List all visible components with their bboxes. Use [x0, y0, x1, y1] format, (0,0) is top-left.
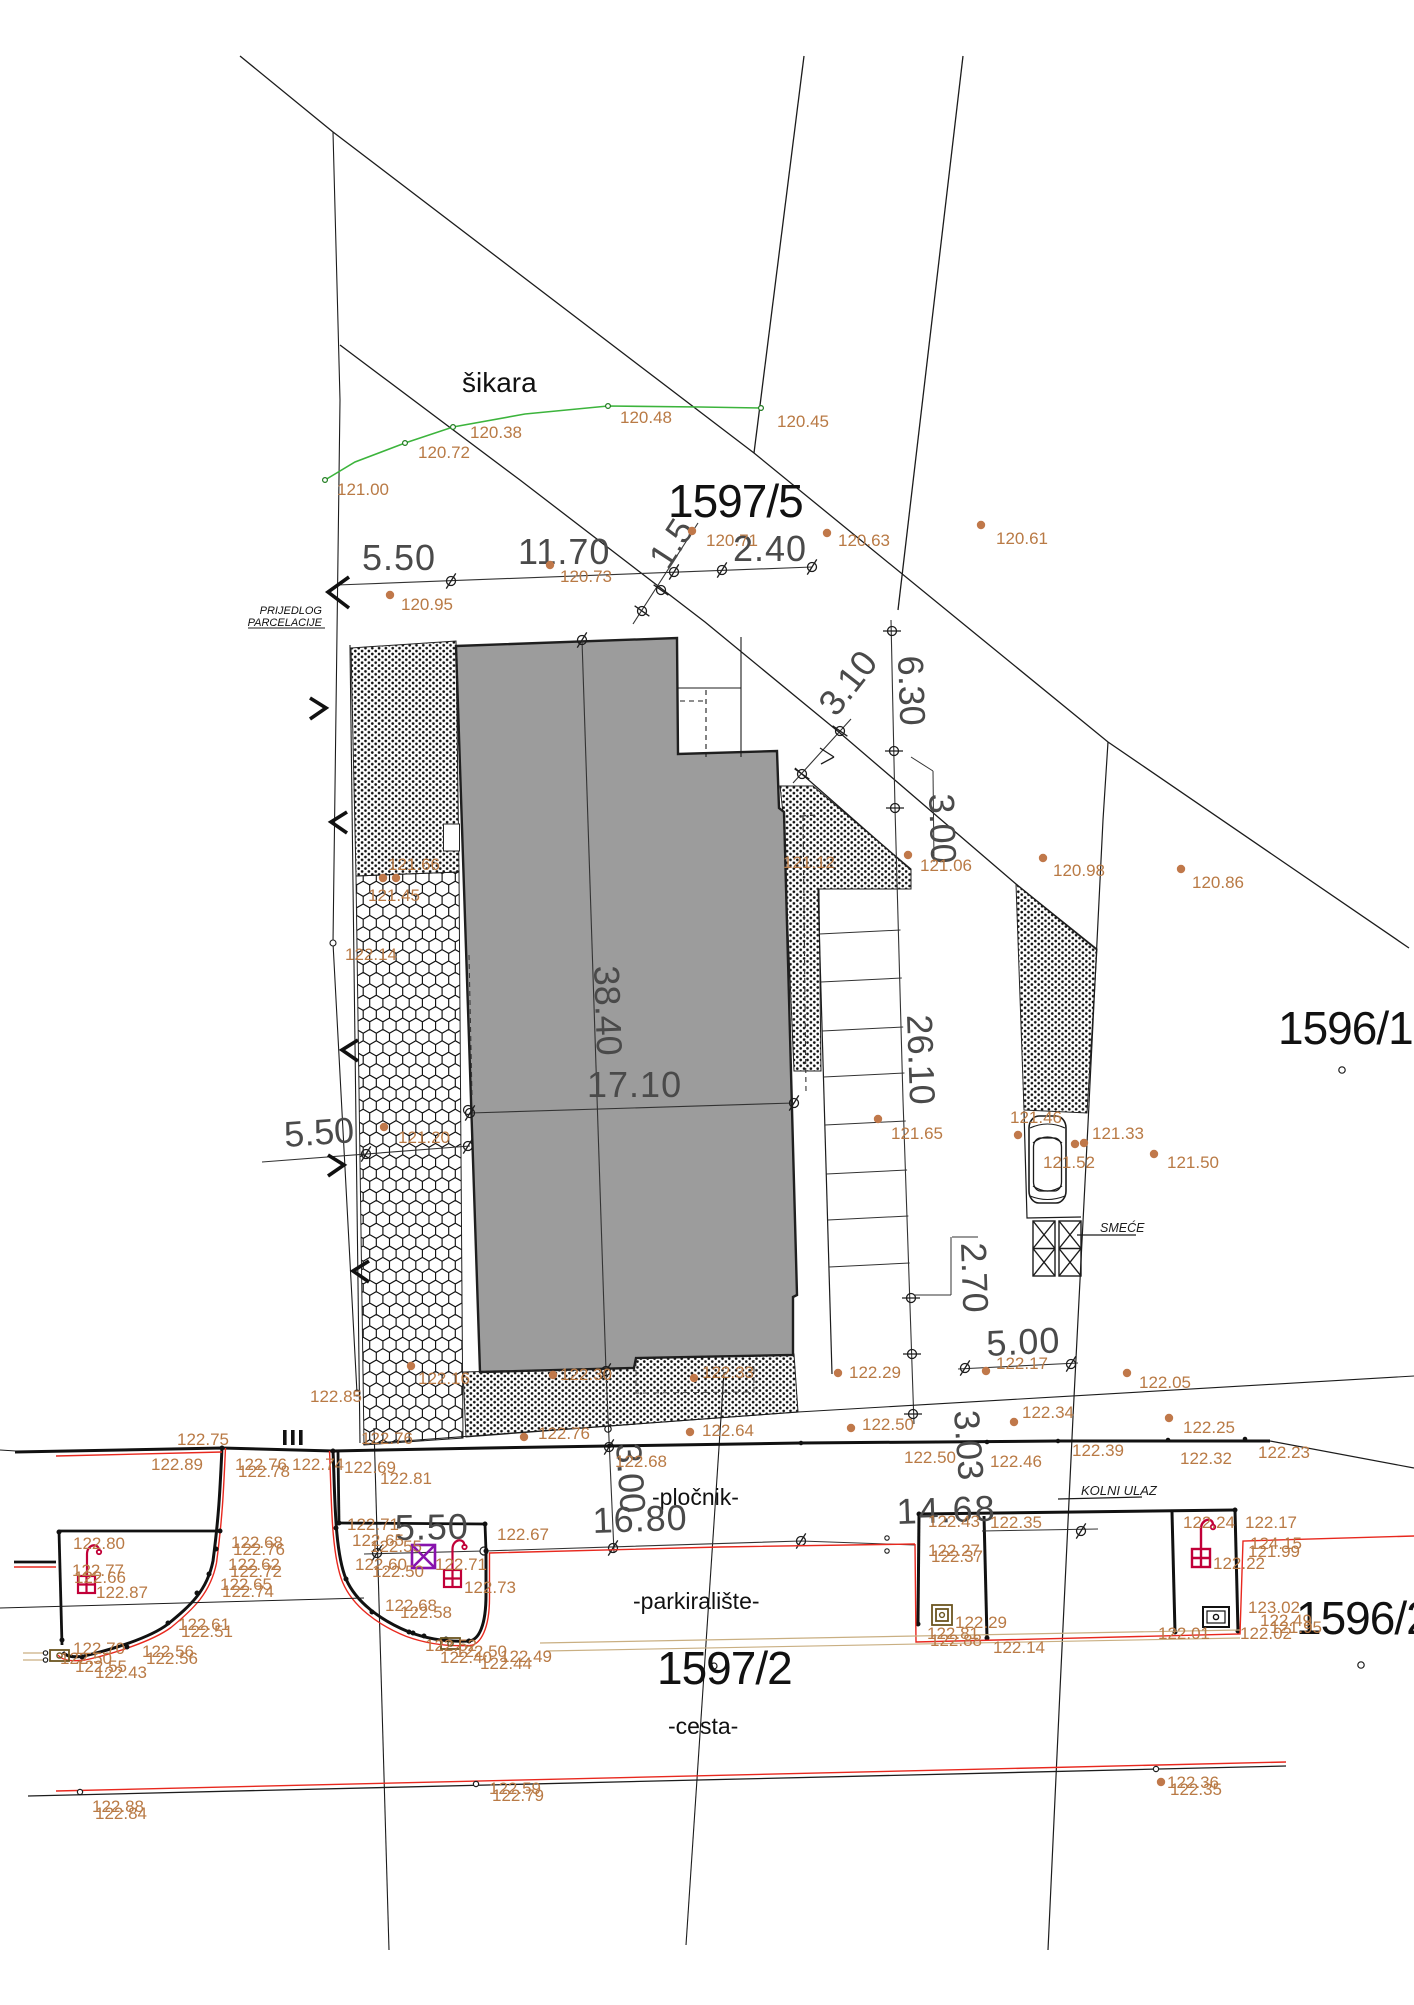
svg-text:122.55: 122.55 — [370, 1537, 422, 1556]
svg-text:11.70: 11.70 — [518, 531, 610, 572]
svg-text:122.29: 122.29 — [849, 1363, 901, 1382]
svg-text:SMEĆE: SMEĆE — [1100, 1220, 1145, 1235]
svg-text:122.68: 122.68 — [615, 1452, 667, 1471]
svg-text:121.06: 121.06 — [920, 856, 972, 875]
svg-text:1597/5: 1597/5 — [668, 475, 803, 527]
svg-text:121.65: 121.65 — [891, 1124, 943, 1143]
svg-text:122.49: 122.49 — [500, 1647, 552, 1666]
svg-text:121.33: 121.33 — [1092, 1124, 1144, 1143]
svg-text:122.34: 122.34 — [1022, 1403, 1074, 1422]
svg-text:1596/1: 1596/1 — [1278, 1002, 1413, 1054]
svg-text:122.17: 122.17 — [996, 1354, 1048, 1373]
svg-text:122.81: 122.81 — [380, 1469, 432, 1488]
svg-text:122.56: 122.56 — [146, 1649, 198, 1668]
svg-text:122.71: 122.71 — [435, 1555, 487, 1574]
svg-text:122.40: 122.40 — [440, 1648, 492, 1667]
svg-text:122.37: 122.37 — [931, 1547, 983, 1566]
svg-text:122.02: 122.02 — [1240, 1624, 1292, 1643]
svg-text:121.45: 121.45 — [368, 886, 420, 905]
svg-text:122.67: 122.67 — [497, 1525, 549, 1544]
svg-text:-cesta-: -cesta- — [668, 1713, 738, 1739]
svg-text:121.12: 121.12 — [783, 853, 835, 872]
svg-text:122.71: 122.71 — [347, 1515, 399, 1534]
svg-text:5.50: 5.50 — [283, 1109, 356, 1155]
svg-text:122.74: 122.74 — [222, 1582, 274, 1601]
svg-text:121.66: 121.66 — [388, 855, 440, 874]
svg-text:122.14: 122.14 — [345, 945, 397, 964]
svg-text:122.89: 122.89 — [151, 1455, 203, 1474]
svg-text:122.23: 122.23 — [1258, 1443, 1310, 1462]
svg-text:121.50: 121.50 — [1167, 1153, 1219, 1172]
svg-text:5.50: 5.50 — [362, 537, 436, 578]
svg-text:120.45: 120.45 — [777, 412, 829, 431]
svg-text:122.51: 122.51 — [181, 1622, 233, 1641]
svg-text:122.33: 122.33 — [702, 1363, 754, 1382]
svg-text:122.50: 122.50 — [862, 1415, 914, 1434]
svg-text:3.00: 3.00 — [921, 793, 964, 864]
svg-text:16.80: 16.80 — [592, 1497, 688, 1541]
svg-text:PRIJEDLOG: PRIJEDLOG — [260, 605, 323, 617]
svg-text:122.78: 122.78 — [238, 1462, 290, 1481]
svg-text:122.73: 122.73 — [464, 1578, 516, 1597]
svg-text:KOLNI ULAZ: KOLNI ULAZ — [1081, 1483, 1158, 1498]
svg-text:120.73: 120.73 — [560, 567, 612, 586]
svg-text:122.84: 122.84 — [95, 1804, 147, 1823]
svg-text:17.10: 17.10 — [587, 1064, 682, 1105]
svg-text:122.24: 122.24 — [1183, 1513, 1235, 1532]
svg-text:122.46: 122.46 — [990, 1452, 1042, 1471]
svg-text:122.22: 122.22 — [1213, 1554, 1265, 1573]
svg-text:2.70: 2.70 — [953, 1242, 996, 1313]
svg-text:122.43: 122.43 — [95, 1663, 147, 1682]
svg-text:26.10: 26.10 — [899, 1014, 943, 1105]
svg-text:-parkiralište-: -parkiralište- — [633, 1588, 760, 1614]
svg-text:122.85: 122.85 — [310, 1387, 362, 1406]
svg-text:121.20: 121.20 — [398, 1128, 450, 1147]
svg-text:120.63: 120.63 — [838, 531, 890, 550]
svg-text:6.30: 6.30 — [890, 655, 933, 726]
svg-text:122.43: 122.43 — [928, 1512, 980, 1531]
svg-text:122.05: 122.05 — [1139, 1373, 1191, 1392]
svg-text:122.76: 122.76 — [361, 1429, 413, 1448]
svg-text:121.00: 121.00 — [337, 480, 389, 499]
svg-text:122.14: 122.14 — [993, 1638, 1045, 1657]
svg-text:120.95: 120.95 — [401, 595, 453, 614]
svg-text:122.35: 122.35 — [1170, 1780, 1222, 1799]
svg-text:121.46: 121.46 — [1010, 1108, 1062, 1127]
svg-text:122.17: 122.17 — [1245, 1513, 1297, 1532]
svg-text:120.98: 120.98 — [1053, 861, 1105, 880]
svg-text:122.30: 122.30 — [560, 1365, 612, 1384]
svg-text:38.40: 38.40 — [586, 965, 630, 1056]
svg-text:122.32: 122.32 — [1180, 1449, 1232, 1468]
svg-text:122.39: 122.39 — [1072, 1441, 1124, 1460]
svg-text:122.58: 122.58 — [400, 1603, 452, 1622]
svg-text:122.50: 122.50 — [372, 1562, 424, 1581]
svg-text:120.48: 120.48 — [620, 408, 672, 427]
svg-text:šikara: šikara — [462, 367, 537, 398]
svg-text:122.16: 122.16 — [418, 1369, 470, 1388]
svg-text:120.61: 120.61 — [996, 529, 1048, 548]
svg-text:122.64: 122.64 — [702, 1421, 754, 1440]
svg-text:122.88: 122.88 — [930, 1631, 982, 1650]
svg-text:122.35: 122.35 — [990, 1513, 1042, 1532]
svg-text:122.25: 122.25 — [1183, 1418, 1235, 1437]
svg-text:122.76: 122.76 — [538, 1424, 590, 1443]
svg-text:122.80: 122.80 — [73, 1534, 125, 1553]
svg-text:121.52: 121.52 — [1043, 1153, 1095, 1172]
svg-text:1597/2: 1597/2 — [657, 1642, 792, 1694]
svg-text:124.15: 124.15 — [1250, 1534, 1302, 1553]
svg-text:PARCELACIJE: PARCELACIJE — [248, 617, 323, 629]
svg-text:122.50: 122.50 — [904, 1448, 956, 1467]
svg-text:122.87: 122.87 — [96, 1583, 148, 1602]
svg-text:122.74: 122.74 — [292, 1455, 344, 1474]
svg-text:120.71: 120.71 — [706, 531, 758, 550]
svg-text:122.01: 122.01 — [1158, 1624, 1210, 1643]
svg-text:120.38: 120.38 — [470, 423, 522, 442]
svg-text:120.86: 120.86 — [1192, 873, 1244, 892]
svg-text:122.79: 122.79 — [492, 1786, 544, 1805]
svg-text:122.75: 122.75 — [177, 1430, 229, 1449]
svg-text:3.03: 3.03 — [946, 1409, 992, 1482]
svg-text:120.72: 120.72 — [418, 443, 470, 462]
